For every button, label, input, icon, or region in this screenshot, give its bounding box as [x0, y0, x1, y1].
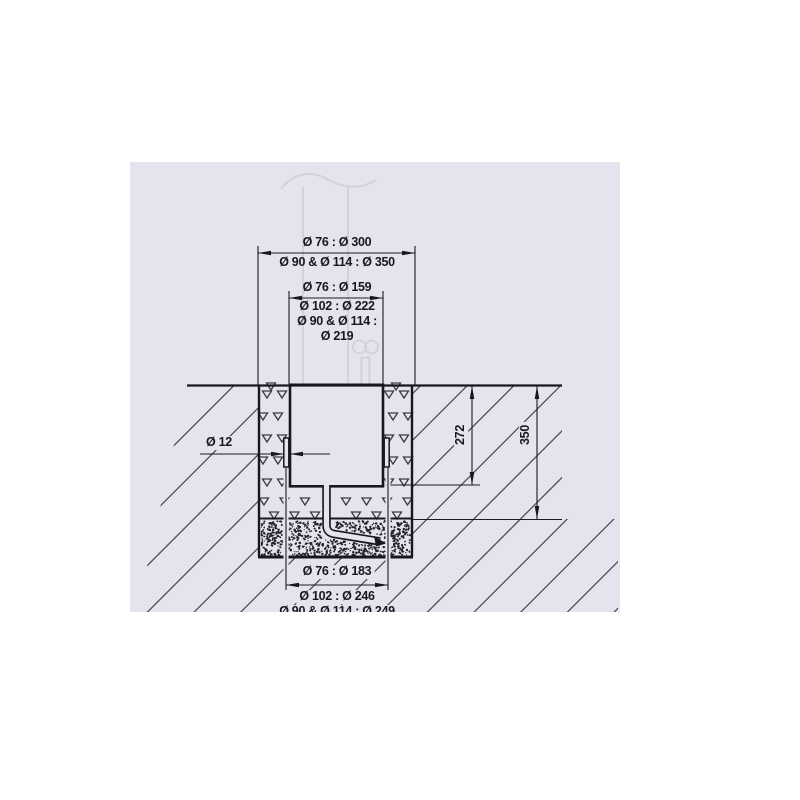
break-line	[281, 174, 376, 189]
dim-top-width-row2: Ø 90 & Ø 114 : Ø 350	[279, 256, 395, 270]
conduit	[327, 484, 387, 547]
dim-bottom-width-row2: Ø 102 : Ø 246	[296, 590, 377, 604]
page: Ø 76 : Ø 300 Ø 90 & Ø 114 : Ø 350 Ø 76 :…	[0, 0, 800, 800]
dim-sleeve-width-row2: Ø 102 : Ø 222	[299, 300, 374, 314]
clip-right	[384, 438, 389, 467]
dim-top-width-row1: Ø 76 : Ø 300	[303, 236, 372, 250]
drawing-linework	[130, 162, 620, 612]
dim-sleeve-width-row1: Ø 76 : Ø 159	[303, 281, 372, 295]
foundation-sleeve	[290, 385, 383, 487]
dim-sleeve-width-row3: Ø 90 & Ø 114 :	[297, 315, 377, 329]
key-icon	[353, 341, 378, 386]
dim-wall-thickness: Ø 12	[203, 436, 235, 450]
dim-bottom-width-row1: Ø 76 : Ø 183	[300, 565, 375, 579]
dim-depth-sleeve: 272	[454, 422, 468, 448]
drawing-panel: Ø 76 : Ø 300 Ø 90 & Ø 114 : Ø 350 Ø 76 :…	[130, 162, 620, 612]
dim-depth-pit: 350	[519, 422, 533, 448]
dim-bottom-width-row3: Ø 90 & Ø 114 : Ø 249	[276, 605, 398, 612]
dim-sleeve-width-row4: Ø 219	[321, 330, 354, 344]
clip-left	[284, 438, 289, 467]
